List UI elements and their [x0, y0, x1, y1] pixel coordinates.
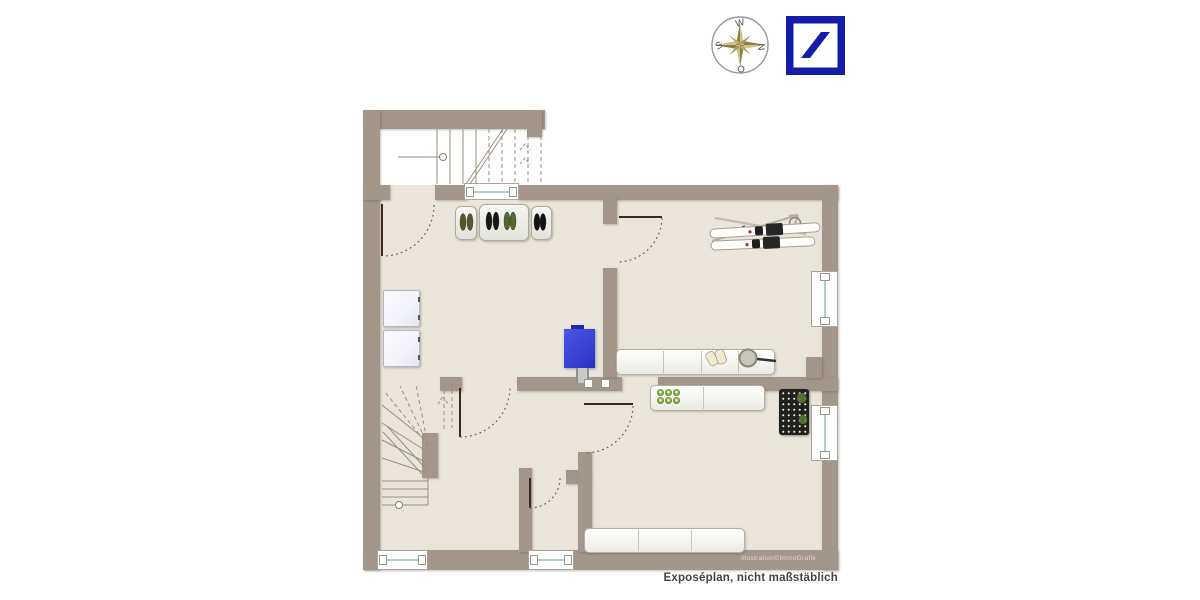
compass-label-north: N [755, 43, 766, 51]
bottle-crate [657, 389, 681, 405]
window [811, 271, 838, 327]
dryer [383, 330, 420, 367]
washing-machine [383, 290, 420, 327]
entry-doorway-floor [386, 185, 436, 202]
illustrator-watermark: Illustration©ImmoGrafik [741, 555, 816, 562]
wall [518, 185, 838, 200]
wall [527, 110, 542, 137]
shoe-rack [455, 206, 477, 240]
window [811, 405, 838, 461]
wall [603, 198, 617, 224]
shoe-rack [479, 204, 529, 241]
boiler [564, 329, 595, 368]
deutsche-bank-logo-icon [786, 16, 845, 75]
window [464, 183, 519, 200]
wall [363, 110, 545, 129]
wall [363, 185, 390, 200]
compass-rose: W N O S [710, 15, 770, 75]
wall [806, 357, 822, 378]
plan-caption: Exposéplan, nicht maßstäblich [538, 572, 838, 584]
wall [603, 268, 617, 377]
window [377, 550, 428, 570]
compass-icon: W N O S [710, 15, 770, 75]
wall [519, 468, 532, 552]
wall [435, 185, 467, 200]
pipe-duct [584, 379, 593, 388]
window [528, 550, 574, 570]
floorplan-page: W N O S [0, 0, 1200, 600]
wine-rack [779, 389, 809, 435]
pipe-duct [601, 379, 610, 388]
wall [363, 110, 380, 570]
basement-floor [380, 200, 822, 550]
storage-shelf [584, 528, 745, 553]
shoe-rack [531, 206, 552, 240]
stair-newel-pier [422, 433, 438, 478]
stairwell-area [380, 129, 542, 187]
sideboard [616, 349, 775, 375]
wall [440, 377, 462, 391]
deutsche-bank-logo [786, 16, 845, 75]
